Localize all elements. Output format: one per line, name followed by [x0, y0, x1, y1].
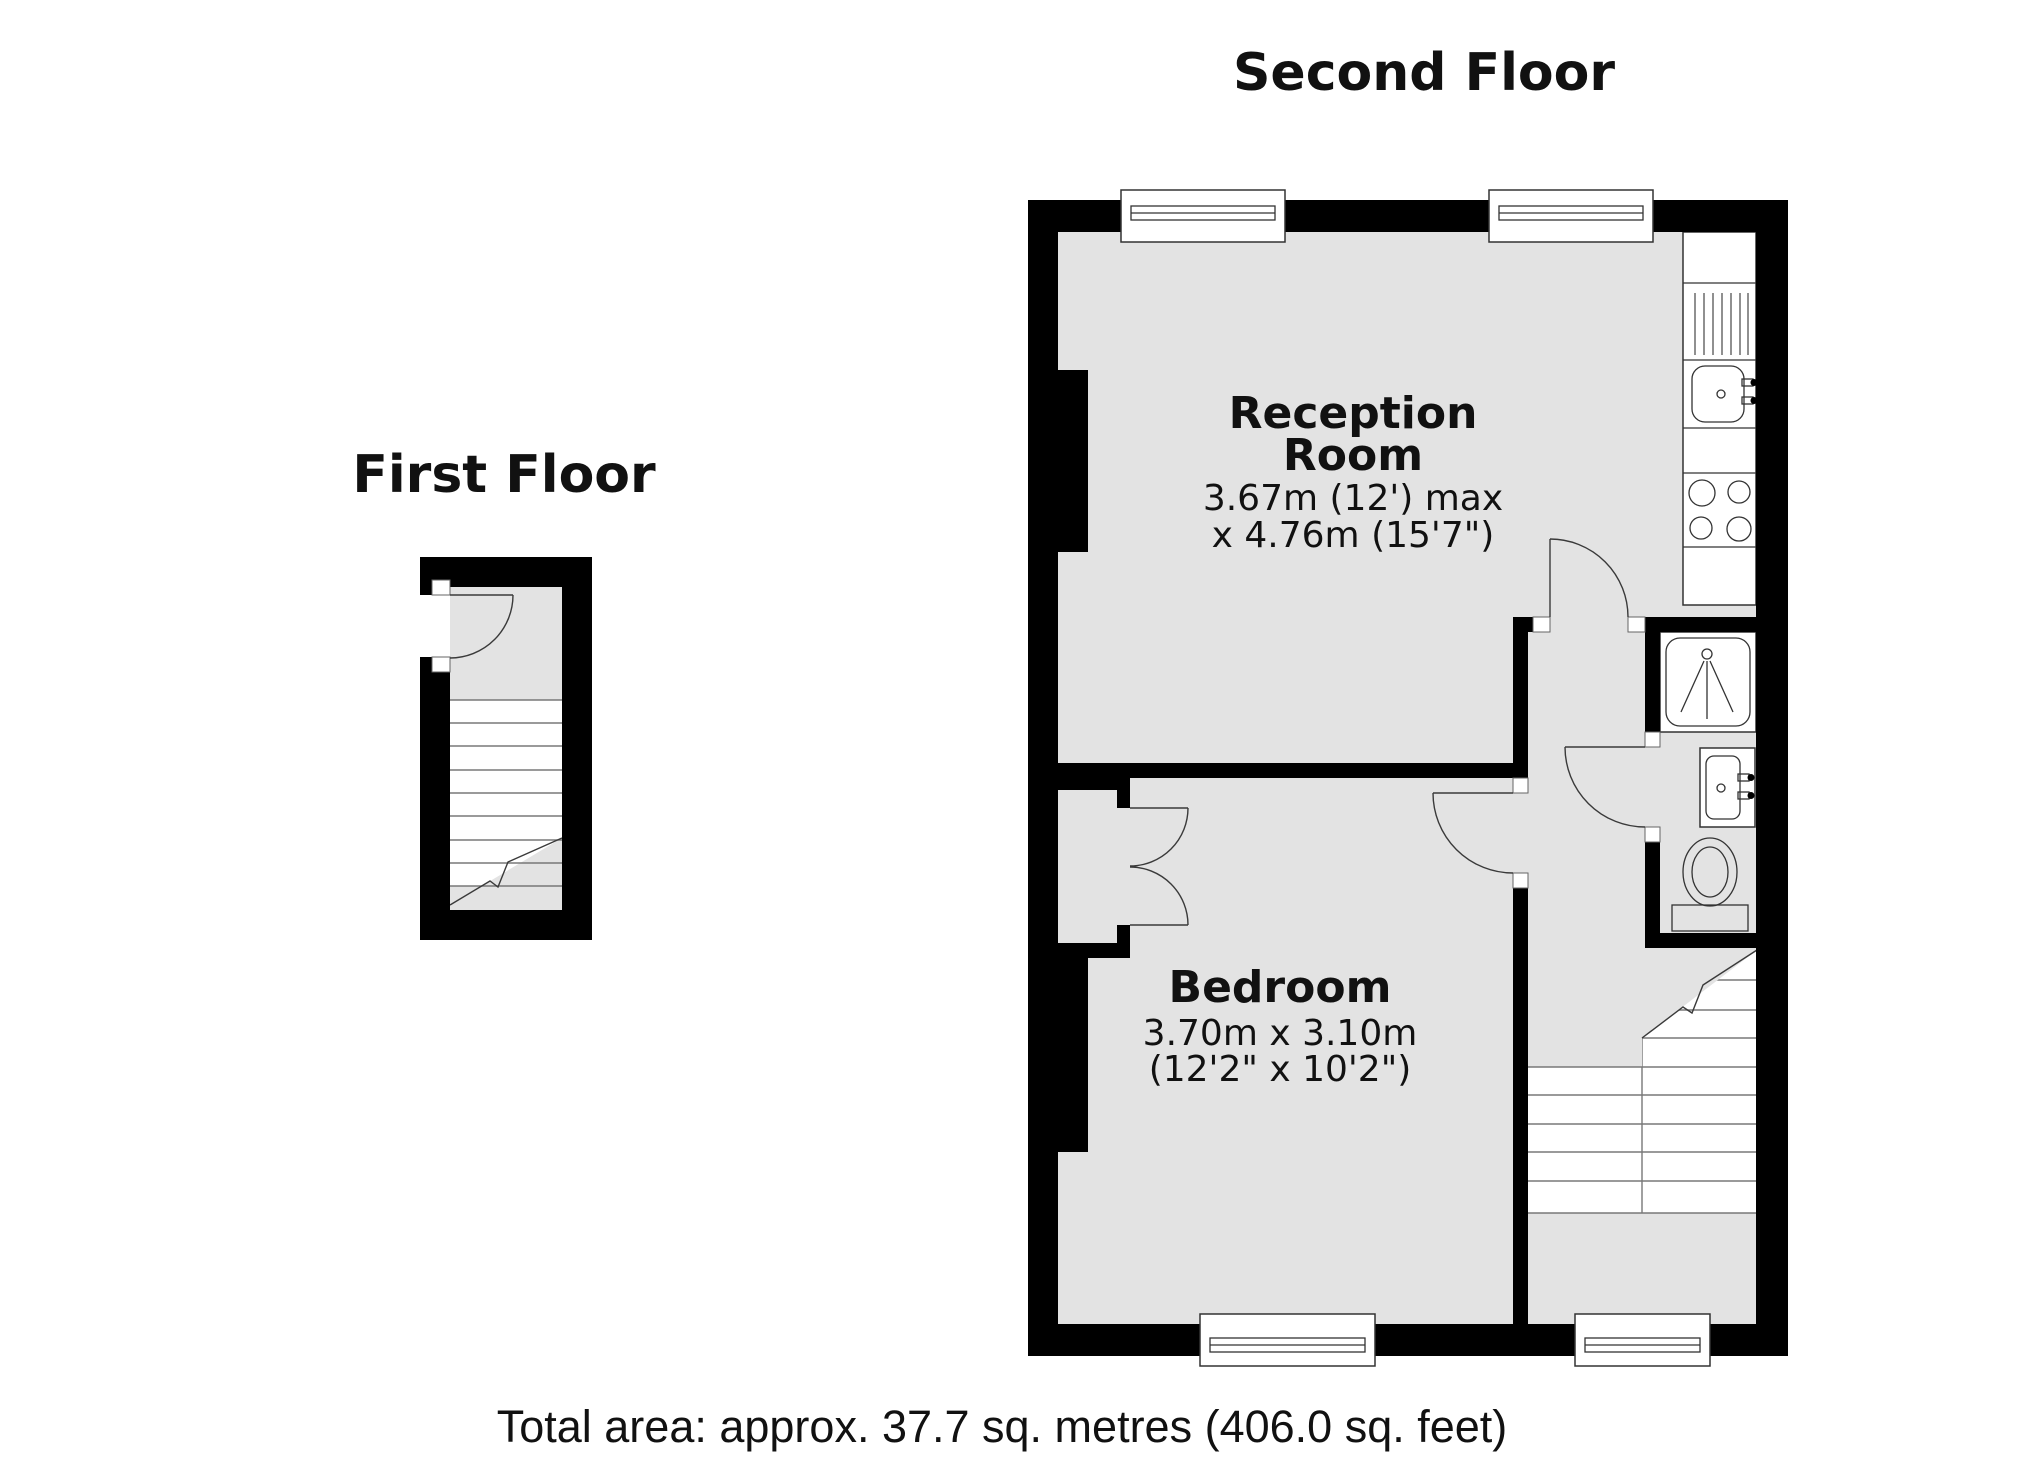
wall-bathroom-left-lower [1645, 842, 1660, 948]
window-bedroom [1200, 1314, 1375, 1366]
first-floor-title: First Floor [352, 445, 656, 505]
wall-right [562, 557, 592, 940]
reception-room-dims-2: x 4.76m (15'7") [1212, 515, 1495, 556]
chimney-breast-reception [1058, 370, 1088, 552]
wall-wardrobe-stub-bottom [1117, 925, 1130, 943]
wall-bedroom-hall [1513, 888, 1528, 1324]
wall-hall-left [1513, 617, 1528, 778]
wall-wardrobe-bottom [1058, 943, 1130, 958]
second-floor-plan: Second Floor Reception Room 3.67m (12') … [1028, 43, 1788, 1366]
wall-stub [1513, 617, 1533, 632]
bedroom-dims-1: 3.70m x 3.10m [1143, 1013, 1418, 1054]
door-opening [420, 595, 450, 657]
staircase-first-floor [450, 700, 562, 910]
bedroom-label: Bedroom [1169, 962, 1392, 1013]
bedroom-dims-2: (12'2" x 10'2") [1149, 1049, 1412, 1090]
window-landing [1575, 1314, 1710, 1366]
kitchen-counter-outline [1683, 232, 1756, 605]
wall-bathroom-bottom [1645, 933, 1756, 948]
second-floor-title: Second Floor [1233, 43, 1615, 103]
reception-room-dims-1: 3.67m (12') max [1203, 478, 1503, 519]
floorplan-page: Second Floor Reception Room 3.67m (12') … [0, 0, 2025, 1473]
wash-basin-icon [1700, 748, 1755, 827]
reception-room-label-2: Room [1283, 430, 1423, 481]
shower-cubicle [1660, 632, 1756, 732]
wall-left [1028, 200, 1058, 1356]
wall-wardrobe-top [1058, 778, 1130, 790]
shower-enclosure [1660, 632, 1756, 732]
total-area-label: Total area: approx. 37.7 sq. metres (406… [497, 1401, 1508, 1452]
wall-bathroom-left-upper [1645, 632, 1660, 732]
wall-wardrobe-stub-top [1117, 790, 1130, 808]
floorplan-canvas: Second Floor Reception Room 3.67m (12') … [0, 0, 2025, 1473]
first-floor-plan: First Floor [352, 445, 656, 940]
wall-bathroom-top [1645, 617, 1756, 632]
window-top-right [1489, 190, 1653, 242]
window-top-left [1121, 190, 1285, 242]
wall-right [1756, 200, 1788, 1356]
chimney-breast-bedroom [1058, 958, 1088, 1152]
wall-reception-bedroom [1058, 763, 1513, 778]
kitchen-counter [1683, 232, 1758, 605]
